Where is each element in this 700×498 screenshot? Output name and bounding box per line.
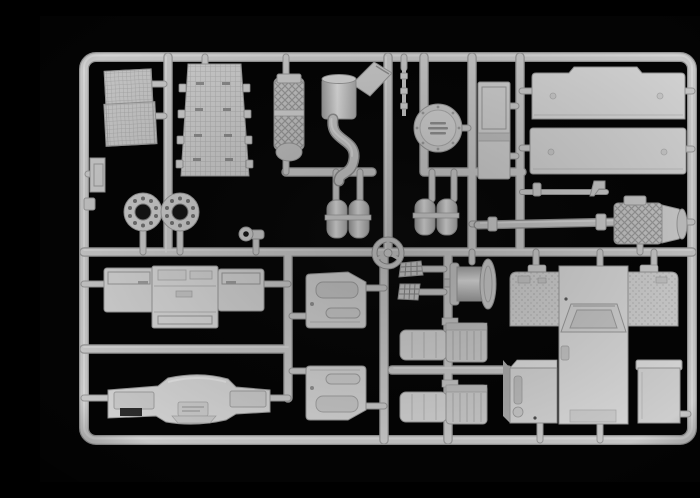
sprue-photo <box>40 16 700 482</box>
sprue-scene <box>40 16 700 482</box>
vignette-overlay <box>40 16 700 482</box>
